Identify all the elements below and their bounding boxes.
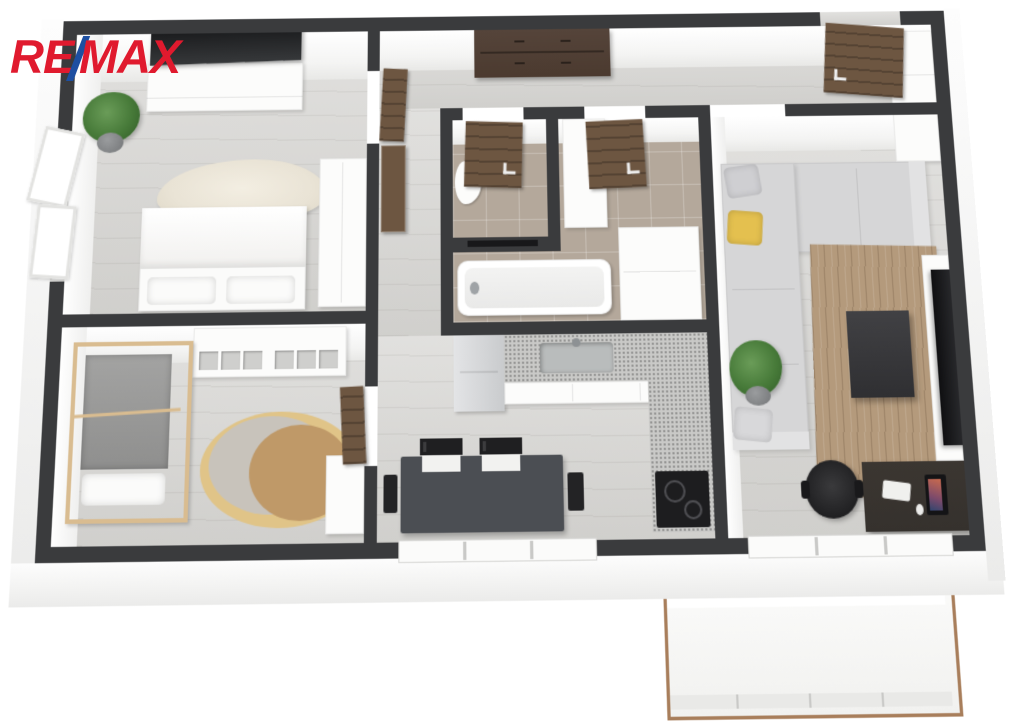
door-mullion bbox=[883, 536, 887, 554]
sideboard-edge bbox=[147, 96, 303, 99]
monitor-screen bbox=[928, 479, 943, 511]
shelf-cubby bbox=[297, 350, 316, 369]
chair-armrest bbox=[801, 481, 811, 499]
sofa-long-section bbox=[721, 163, 810, 450]
sink-faucet-icon bbox=[572, 338, 581, 347]
bed-pillow bbox=[226, 275, 295, 304]
dining-chair-side bbox=[383, 475, 397, 513]
bed-pillow bbox=[147, 276, 217, 305]
window-mullion bbox=[530, 541, 534, 559]
towel-bar bbox=[468, 240, 538, 247]
fridge bbox=[453, 335, 504, 412]
apartment-plan bbox=[25, 11, 999, 724]
floorplan-render: { "brand": {"logo_re": "RE", "logo_slash… bbox=[0, 0, 1024, 724]
desk bbox=[862, 461, 970, 532]
window-mullion bbox=[463, 542, 466, 560]
coffee-table bbox=[846, 310, 915, 397]
remax-logo: RE/MAX bbox=[10, 30, 180, 90]
bath-washer-counter bbox=[618, 226, 702, 320]
shelf-cubby bbox=[243, 351, 262, 370]
sofa-pillow-yellow bbox=[727, 210, 763, 246]
shelf-cubby bbox=[319, 350, 338, 369]
house-frame-bed bbox=[65, 341, 194, 524]
balcony bbox=[663, 595, 963, 720]
hall-cabinet bbox=[381, 145, 406, 232]
sofa-pillow-gray bbox=[733, 406, 773, 443]
wall-bedroom-hall bbox=[368, 17, 380, 71]
mouse bbox=[916, 504, 924, 515]
sofa-pillow-gray bbox=[723, 163, 763, 199]
door-handle-icon bbox=[503, 163, 516, 175]
wardrobe-seam bbox=[341, 162, 344, 302]
tub-basin bbox=[465, 266, 605, 308]
cabinet-seam bbox=[639, 383, 641, 401]
dining-chair-seat bbox=[482, 454, 521, 471]
dresser-handle bbox=[514, 40, 524, 42]
hall-dresser bbox=[474, 29, 611, 78]
burner-icon bbox=[684, 500, 703, 519]
cabinet-seam bbox=[572, 384, 573, 402]
entrance-door bbox=[824, 23, 904, 98]
keyboard bbox=[882, 480, 911, 502]
kitchen-window bbox=[398, 538, 597, 563]
door-handle-icon bbox=[834, 69, 846, 81]
wall-hallway-south bbox=[785, 102, 938, 116]
kitchen-sink bbox=[540, 342, 614, 373]
double-bed bbox=[138, 206, 307, 311]
wc-door bbox=[464, 121, 523, 188]
bed-duvet bbox=[140, 206, 307, 269]
kids-desk bbox=[325, 455, 364, 534]
bedroom-wardrobe bbox=[318, 158, 367, 307]
dresser-handle bbox=[561, 40, 571, 42]
wall-bedroom-hall bbox=[364, 466, 377, 543]
dining-chair-seat bbox=[422, 455, 460, 472]
logo-max: MAX bbox=[79, 30, 180, 83]
shelf-cubby bbox=[199, 351, 218, 370]
wall-bottom bbox=[952, 535, 986, 551]
dresser-drawer-line bbox=[480, 50, 604, 53]
dresser-handle bbox=[515, 62, 525, 64]
cooktop bbox=[655, 471, 711, 528]
burner-icon bbox=[664, 480, 686, 503]
kids-shelf-unit bbox=[192, 326, 346, 378]
shelf-cubby bbox=[275, 350, 294, 369]
kids-bed-pillow bbox=[81, 473, 166, 506]
wall-bedroom-hall bbox=[365, 144, 379, 387]
dining-chair-back bbox=[479, 437, 522, 454]
tub-faucet-icon bbox=[470, 282, 479, 295]
balcony-door bbox=[748, 533, 954, 559]
bedroom-door bbox=[379, 68, 407, 141]
counter-divider bbox=[623, 270, 696, 272]
dresser-handle bbox=[561, 62, 571, 64]
bathtub bbox=[457, 259, 612, 316]
monitor bbox=[924, 474, 948, 515]
door-handle-icon bbox=[627, 162, 640, 174]
bathroom-door bbox=[585, 119, 646, 189]
wall-wc-bath-separator bbox=[546, 119, 561, 237]
dining-chair-side bbox=[567, 472, 584, 510]
wall-bottom bbox=[597, 538, 749, 556]
wall-bath-west bbox=[440, 108, 453, 323]
dining-chair-back bbox=[420, 438, 463, 455]
door-mullion bbox=[814, 537, 818, 555]
sofa-seam bbox=[856, 168, 862, 245]
fridge-handle bbox=[460, 371, 498, 374]
shelf-cubby bbox=[221, 351, 240, 370]
wall-hallway-south bbox=[523, 107, 584, 120]
logo-re: RE bbox=[10, 30, 73, 83]
sofa-seam bbox=[732, 288, 794, 290]
kids-room-door bbox=[340, 386, 366, 465]
